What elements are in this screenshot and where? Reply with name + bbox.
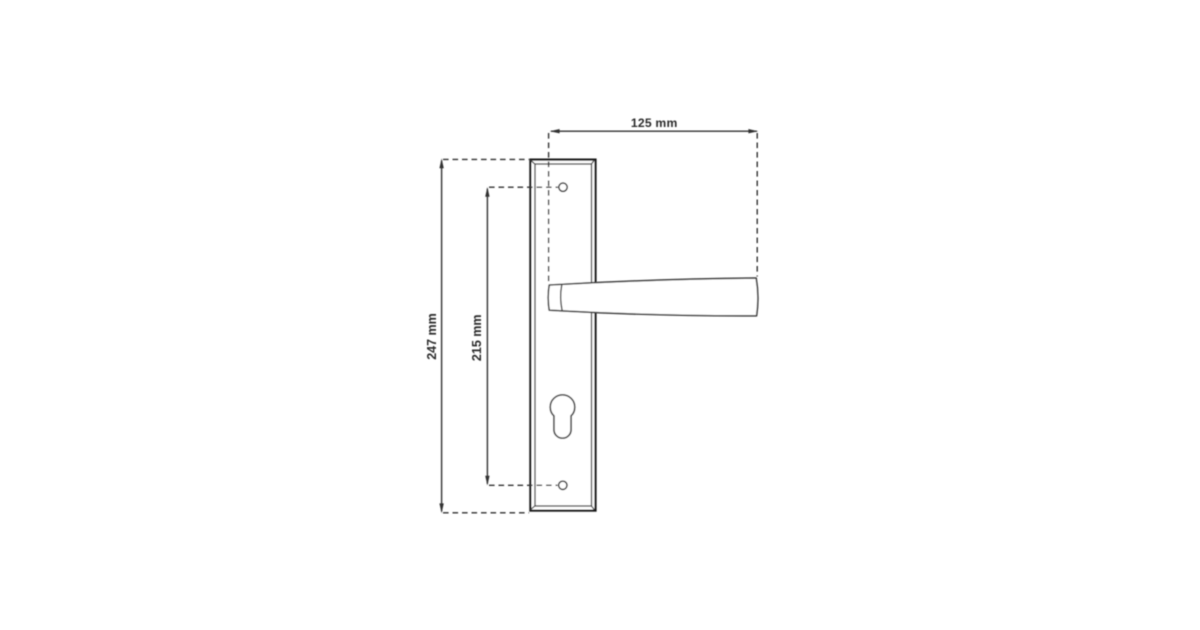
svg-text:215 mm: 215 mm xyxy=(470,315,484,362)
svg-text:125 mm: 125 mm xyxy=(631,116,678,130)
svg-text:247 mm: 247 mm xyxy=(425,313,439,360)
